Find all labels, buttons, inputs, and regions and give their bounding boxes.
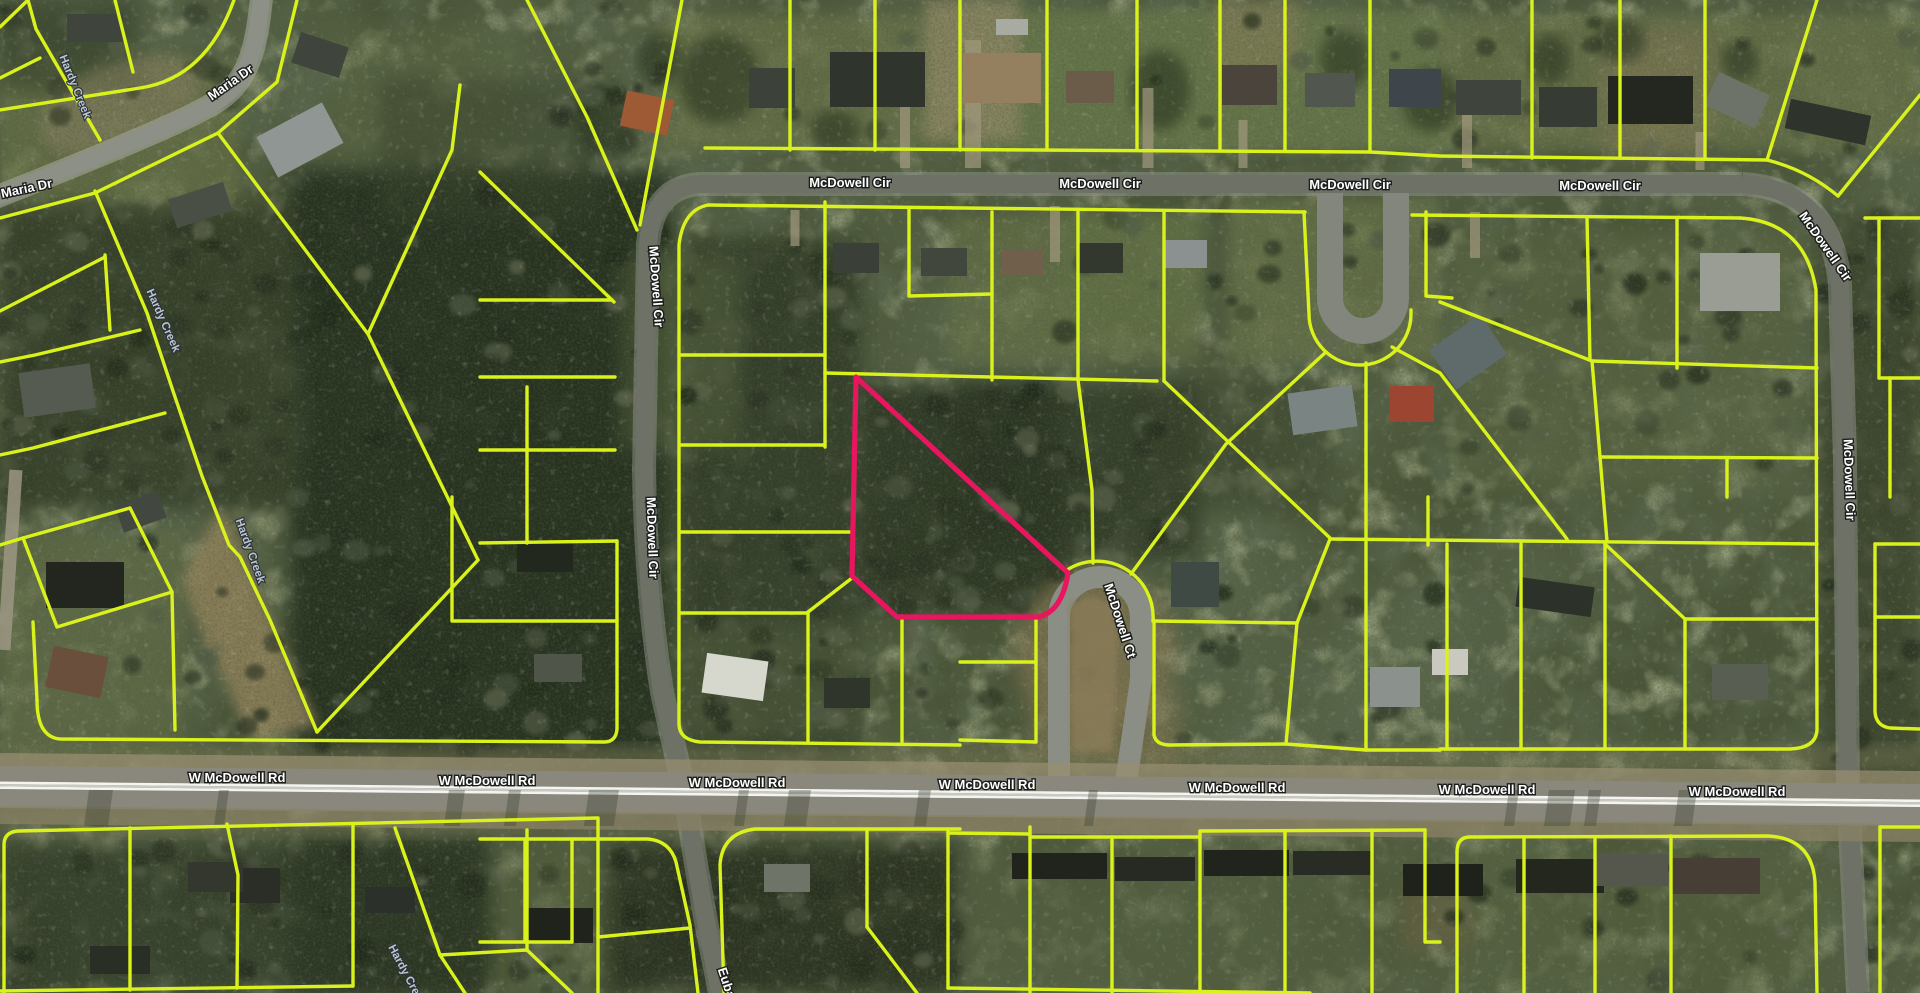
svg-text:W McDowell Rd: W McDowell Rd [1189,780,1286,795]
svg-text:McDowell Cir: McDowell Cir [1841,439,1859,521]
svg-text:W McDowell Rd: W McDowell Rd [439,773,536,788]
svg-text:McDowell Cir: McDowell Cir [1059,176,1141,191]
svg-text:W McDowell Rd: W McDowell Rd [189,770,286,785]
svg-text:McDowell Cir: McDowell Cir [644,497,662,579]
svg-text:McDowell Cir: McDowell Cir [1559,178,1641,193]
svg-text:W McDowell Rd: W McDowell Rd [1689,784,1786,799]
svg-text:McDowell Cir: McDowell Cir [809,175,891,190]
svg-text:McDowell Cir: McDowell Cir [1309,177,1391,192]
svg-text:W McDowell Rd: W McDowell Rd [1439,782,1536,797]
svg-text:W McDowell Rd: W McDowell Rd [939,777,1036,792]
svg-text:W McDowell Rd: W McDowell Rd [689,775,786,790]
